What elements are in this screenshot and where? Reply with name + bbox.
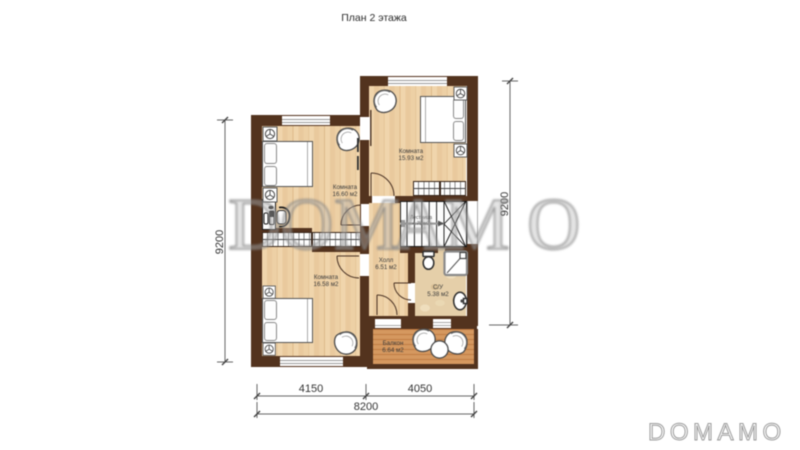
svg-text:M: M bbox=[444, 184, 510, 266]
svg-text:O: O bbox=[280, 184, 333, 266]
svg-text:O: O bbox=[527, 184, 580, 266]
svg-text:D: D bbox=[228, 184, 281, 266]
svg-text:A: A bbox=[392, 184, 445, 266]
svg-text:M: M bbox=[334, 184, 400, 266]
